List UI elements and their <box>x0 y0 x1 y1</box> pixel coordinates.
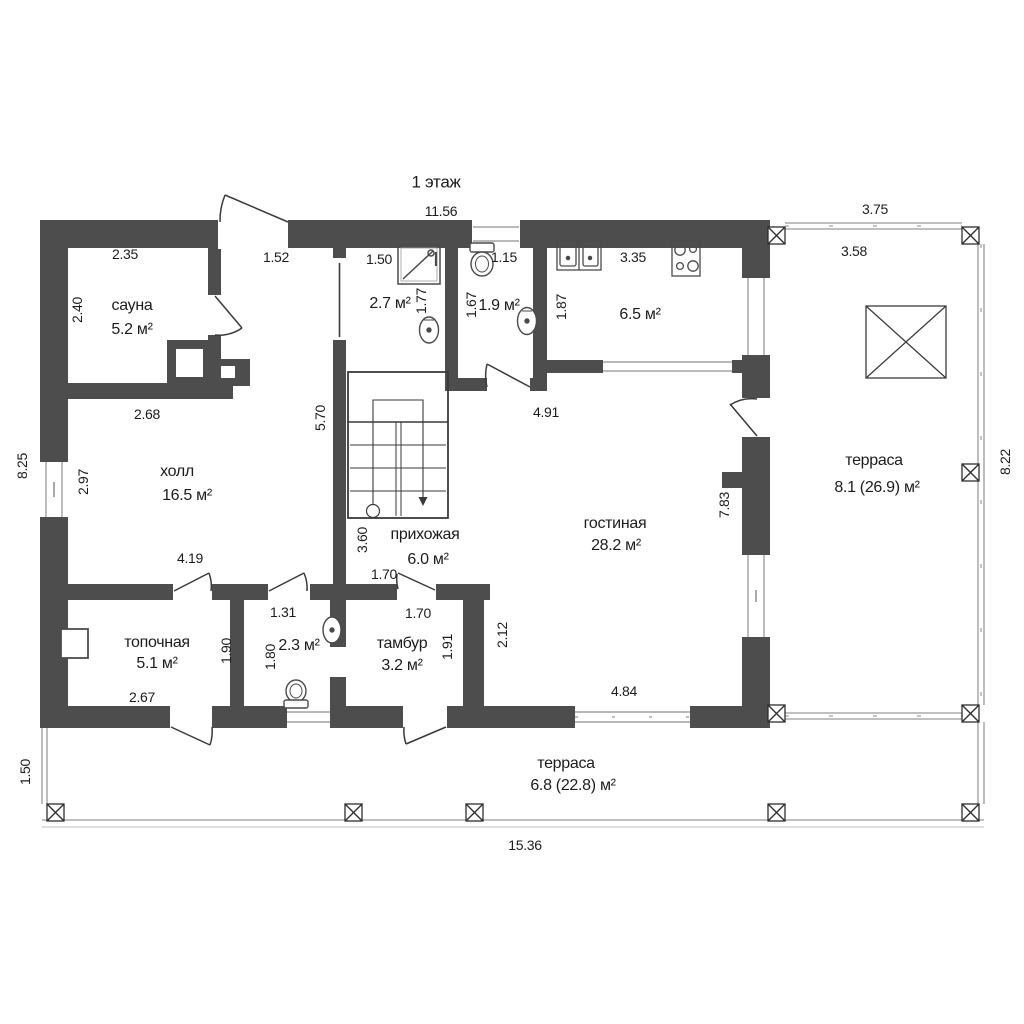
dim-shower-top: 1.50 <box>366 252 392 266</box>
terrace-post-icon <box>466 804 483 821</box>
boiler-icon <box>61 629 88 658</box>
room-label-hallway: прихожая <box>391 527 460 543</box>
dim-terrace-right-width: 3.75 <box>862 202 888 216</box>
terrace-post-icon <box>962 227 979 244</box>
room-area-hallway: 6.0 м² <box>407 552 448 568</box>
dim-shower-right: 1.77 <box>414 288 428 314</box>
room-label-tambour: тамбур <box>377 636 428 652</box>
terrace-post-icon <box>962 464 979 481</box>
floor-plan-drawing <box>0 0 1024 1024</box>
dim-hall-right: 5.70 <box>313 405 327 431</box>
terrace-post-icon <box>962 705 979 722</box>
room-area-tambour: 3.2 м² <box>381 658 422 674</box>
room-label-living: гостиная <box>584 516 647 532</box>
room-area-boiler: 5.1 м² <box>136 656 177 672</box>
dim-hall-left: 2.97 <box>76 469 90 495</box>
dim-terrace-bottom-width: 15.36 <box>508 838 542 852</box>
skylight-marker <box>866 306 946 378</box>
sink-icon <box>420 317 439 343</box>
terrace-post-icon <box>47 804 64 821</box>
sink-icon <box>323 617 341 643</box>
floor-plan: 1 этаж 11.56 3.75 3.58 8.22 8.25 1.50 15… <box>0 0 1024 1024</box>
dim-building-left: 8.25 <box>15 453 29 479</box>
sink-icon <box>518 308 537 335</box>
room-label-boiler: топочная <box>124 635 190 651</box>
dim-living-right: 7.83 <box>717 492 731 518</box>
dim-entry-opening: 1.52 <box>263 250 289 264</box>
shower-icon <box>398 245 440 284</box>
terrace-post-icon <box>345 804 362 821</box>
dim-living-bottom: 4.84 <box>611 684 637 698</box>
page-title: 1 этаж <box>411 174 460 191</box>
dim-terrace-bottom-height: 1.50 <box>18 759 32 785</box>
sauna-heater-icon <box>167 340 250 386</box>
room-area-hall: 16.5 м² <box>162 488 212 504</box>
room-label-sauna: сауна <box>112 298 153 314</box>
room-area-kitchen: 6.5 м² <box>619 307 660 323</box>
terrace-post-icon <box>962 804 979 821</box>
dim-bath-top: 1.31 <box>270 605 296 619</box>
dim-bath-left: 1.80 <box>263 644 277 670</box>
kitchen-sink-icon <box>557 241 601 270</box>
dim-kitchen-left: 1.87 <box>554 294 568 320</box>
dim-wc-window: 1.15 <box>491 250 517 264</box>
dim-kitchen-top: 3.35 <box>620 250 646 264</box>
room-area-terrace-bottom: 6.8 (22.8) м² <box>530 778 615 794</box>
toilet-icon <box>284 680 308 708</box>
dim-stair-left: 3.60 <box>355 527 369 553</box>
dim-hallway-door: 1.70 <box>371 567 397 581</box>
dim-sauna-bottom: 2.68 <box>134 407 160 421</box>
room-label-hall: холл <box>160 464 194 480</box>
terrace-post-icon <box>768 705 785 722</box>
dim-boiler-right: 1.90 <box>219 638 233 664</box>
staircase <box>348 372 448 518</box>
dim-hall-bottom: 4.19 <box>177 551 203 565</box>
room-label-terrace-bottom: терраса <box>537 756 595 772</box>
room-label-terrace-right: терраса <box>845 453 903 469</box>
room-area-terrace-right: 8.1 (26.9) м² <box>834 480 919 496</box>
terrace-posts <box>47 227 979 821</box>
room-area-wc: 1.9 м² <box>478 298 519 314</box>
room-area-bathroom: 2.3 м² <box>278 638 319 654</box>
dim-living-top: 4.91 <box>533 405 559 419</box>
dim-terrace-right-width-inner: 3.58 <box>841 244 867 258</box>
dim-tambour-top: 1.70 <box>405 606 431 620</box>
dim-wc-left: 1.67 <box>464 292 478 318</box>
dim-building-top: 11.56 <box>425 204 458 218</box>
dim-terrace-right-height: 8.22 <box>998 449 1012 475</box>
room-area-sauna: 5.2 м² <box>111 322 152 338</box>
dim-boiler-bottom: 2.67 <box>129 690 155 704</box>
room-area-shower: 2.7 м² <box>369 296 410 312</box>
dim-sauna-left: 2.40 <box>70 297 84 323</box>
terrace-post-icon <box>768 227 785 244</box>
dim-tambour-right: 1.91 <box>440 634 454 660</box>
dim-sauna-top: 2.35 <box>112 247 138 261</box>
dim-living-left: 2.12 <box>495 622 509 648</box>
terrace-post-icon <box>768 804 785 821</box>
room-area-living: 28.2 м² <box>591 538 641 554</box>
